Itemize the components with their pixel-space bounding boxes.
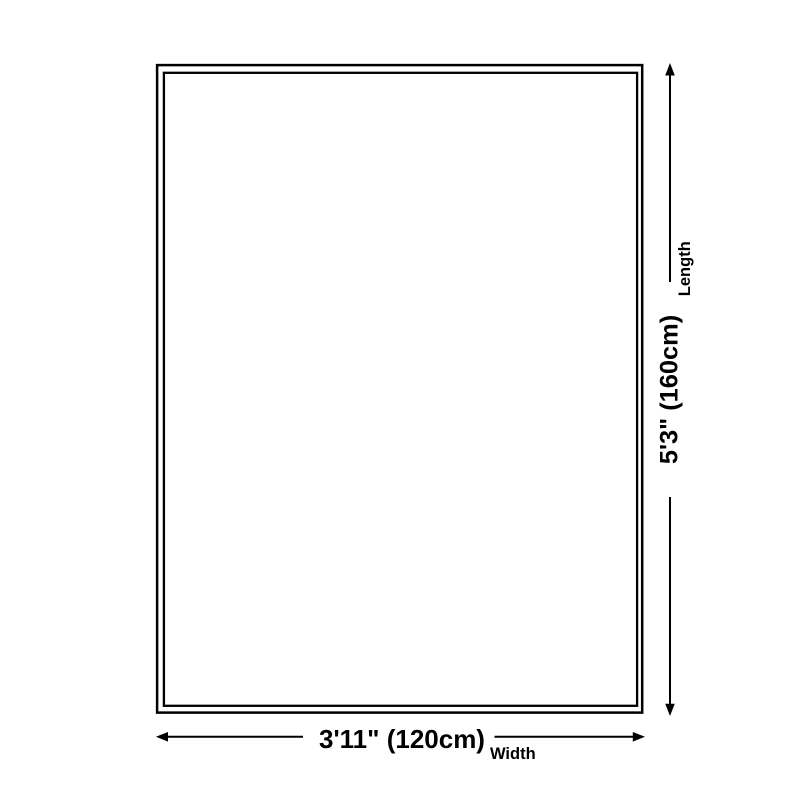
svg-text:Width: Width [490,745,536,763]
svg-text:Length: Length [676,241,694,296]
svg-text:5'3" (160cm): 5'3" (160cm) [656,315,684,464]
svg-text:3'11" (120cm): 3'11" (120cm) [319,724,485,754]
